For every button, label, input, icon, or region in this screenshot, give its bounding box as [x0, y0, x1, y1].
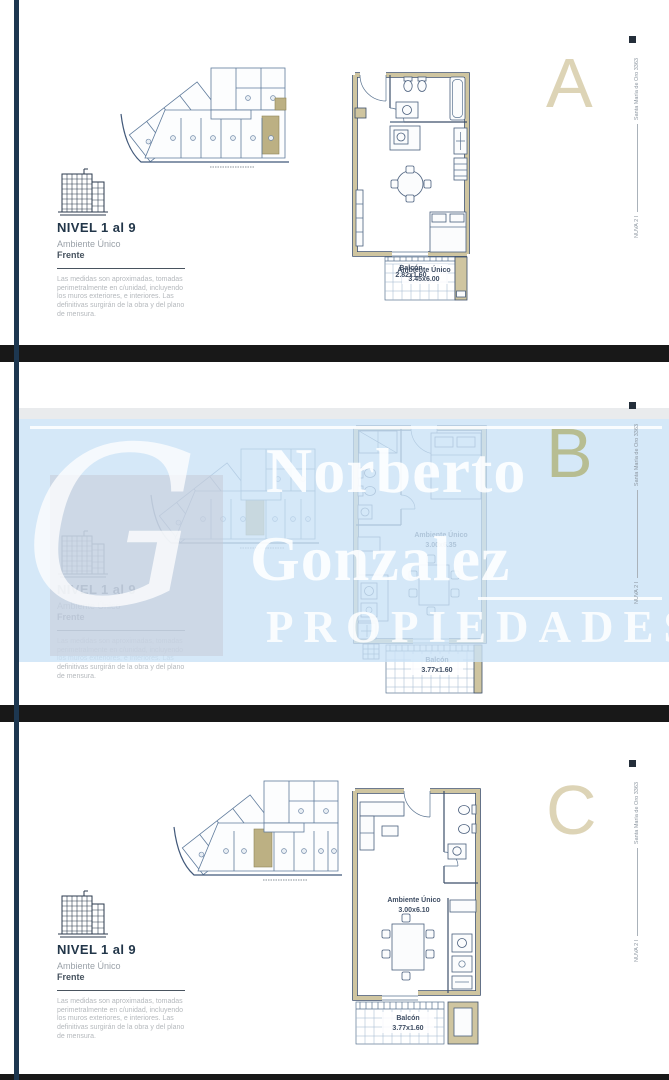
- floorplate-plan-c: [168, 775, 350, 885]
- disclaimer-line: definitivas surgirán de la obra y del pl…: [57, 1024, 227, 1033]
- watermark-name-2: Gonzalez: [250, 524, 510, 594]
- panel-unit-c: Balcón 3.77x1.60 Ambiente Único 3.00x6.1…: [0, 722, 669, 1074]
- caption-rule: [637, 124, 638, 212]
- edge-caption: NUVA 2 I Santa María de Oro 3363: [630, 782, 644, 962]
- disclaimer-line: perimetralmente en c/unidad, incluyendo: [57, 1007, 227, 1016]
- highlighted-unit: [254, 829, 272, 867]
- disclaimer-line: perimetralmente en c/unidad, incluyendo: [57, 285, 227, 294]
- address-caption: Santa María de Oro 3363: [634, 782, 640, 844]
- disclaimer-line: definitivas surgirán de la obra y del pl…: [57, 302, 227, 311]
- unit-type: Ambiente Único: [57, 961, 121, 971]
- disclaimer: Las medidas son aproximadas, tomadas per…: [57, 276, 227, 320]
- panel-unit-b: Balcón 3.77x1.60 Ambiente Único 3.00x6.3…: [0, 362, 669, 705]
- unit-letter-b: B: [546, 418, 595, 488]
- caption-rule: [637, 848, 638, 936]
- orientation: Frente: [57, 972, 85, 982]
- panel-unit-a: Ambiente Único 3.45x6.00 . Balcón 2.82x1…: [0, 0, 669, 345]
- corner-square: [629, 402, 636, 409]
- balcony-label-text: Balcón: [399, 265, 422, 272]
- balcony-dims-text: 3.77x1.60: [421, 667, 452, 674]
- disclaimer-line: de mensura.: [57, 673, 227, 682]
- plan-sheet: Ambiente Único 3.45x6.00 . Balcón 2.82x1…: [0, 0, 669, 1080]
- separator-bar: [0, 345, 669, 362]
- caption-rule: [637, 490, 638, 578]
- balcony-dims-text: 2.82x1.60: [395, 272, 426, 279]
- separator-bar: [0, 1074, 669, 1080]
- divider-line: [57, 990, 185, 991]
- unit-floorplan-c: Balcón 3.77x1.60 Ambiente Único 3.00x6.1…: [352, 788, 482, 1048]
- highlighted-unit: [262, 116, 279, 154]
- left-accent-rule: [14, 0, 19, 1080]
- project-caption: NUVA 2 I: [634, 216, 640, 238]
- disclaimer-line: Las medidas son aproximadas, tomadas: [57, 276, 227, 285]
- orientation: Frente: [57, 250, 85, 260]
- level-title: NIVEL 1 al 9: [57, 942, 136, 957]
- balcony-label-text: Balcón: [396, 1015, 419, 1022]
- unit-letter-c: C: [546, 775, 599, 845]
- disclaimer-line: Las medidas son aproximadas, tomadas: [57, 998, 227, 1007]
- address-caption: Santa María de Oro 3363: [634, 58, 640, 120]
- room-label: Ambiente Único: [387, 895, 440, 904]
- building-icon: [54, 168, 116, 218]
- project-caption: NUVA 2 I: [634, 582, 640, 604]
- room-dims: 3.00x6.10: [398, 907, 429, 914]
- watermark-monogram: G: [24, 418, 200, 638]
- separator-bar: [0, 705, 669, 722]
- disclaimer-line: de mensura.: [57, 311, 227, 320]
- floorplate-plan-a: [115, 62, 297, 172]
- address-caption: Santa María de Oro 3363: [634, 424, 640, 486]
- level-title: NIVEL 1 al 9: [57, 220, 136, 235]
- edge-caption: NUVA 2 I Santa María de Oro 3363: [630, 58, 644, 238]
- watermark-tagline: PROPIEDADES: [266, 602, 669, 652]
- unit-letter-a: A: [546, 48, 595, 118]
- unit-type: Ambiente Único: [57, 239, 121, 249]
- building-icon: [54, 890, 116, 940]
- disclaimer-line: los muros exteriores, e interiores. Las: [57, 293, 227, 302]
- corner-square: [629, 760, 636, 767]
- edge-caption: NUVA 2 I Santa María de Oro 3363: [630, 424, 644, 604]
- disclaimer-line: los muros exteriores, e interiores. Las: [57, 1015, 227, 1024]
- corner-square: [629, 36, 636, 43]
- divider-line: [57, 268, 185, 269]
- disclaimer-line: de mensura.: [57, 1033, 227, 1042]
- disclaimer: Las medidas son aproximadas, tomadas per…: [57, 998, 227, 1042]
- watermark-name-1: Norberto: [266, 436, 526, 506]
- balcony-dims-text: 3.77x1.60: [392, 1025, 423, 1032]
- disclaimer-line: definitivas surgirán de la obra y del pl…: [57, 664, 227, 673]
- highlighted-unit-upper: [275, 98, 286, 110]
- project-caption: NUVA 2 I: [634, 940, 640, 962]
- balcony-label-a: Balcón 2.82x1.60: [352, 265, 470, 279]
